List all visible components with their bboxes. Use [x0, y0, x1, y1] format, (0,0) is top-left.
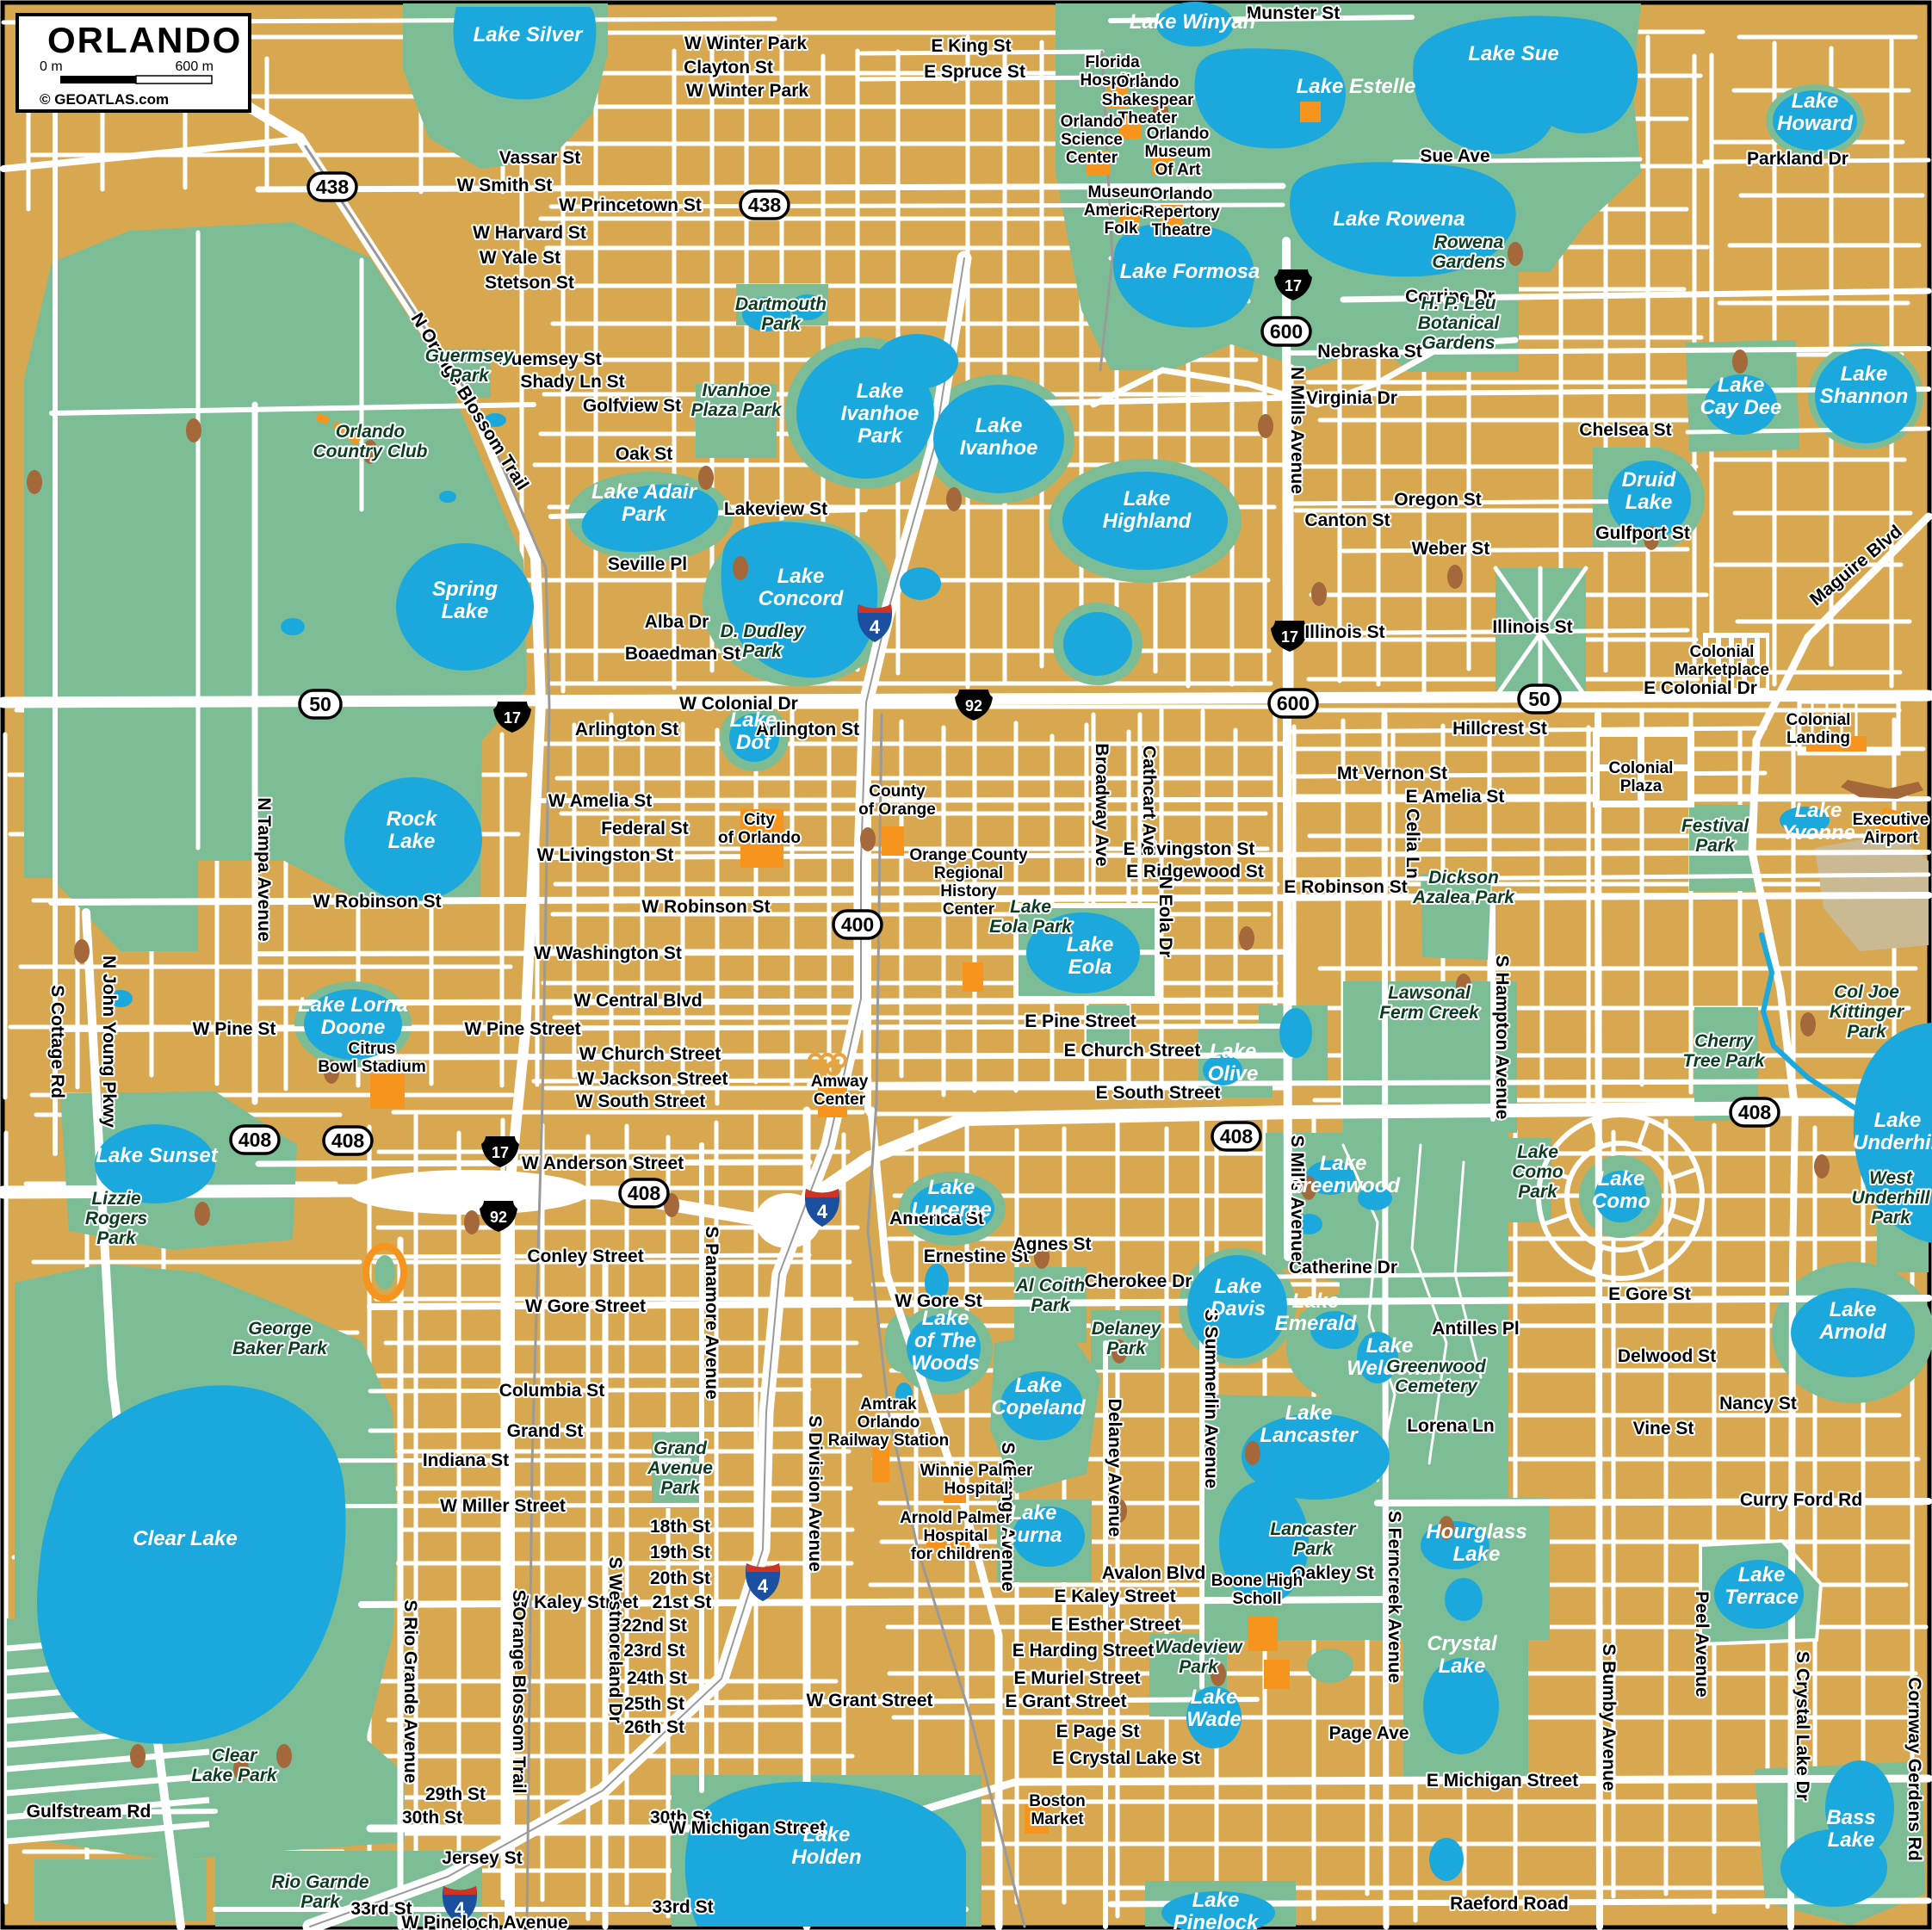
svg-text:Shady Ln St: Shady Ln St: [520, 372, 624, 392]
svg-text:N Mills Avenue: N Mills Avenue: [1287, 367, 1307, 494]
svg-text:E Kaley Street: E Kaley Street: [1054, 1587, 1175, 1606]
svg-text:W Pineloch Avenue: W Pineloch Avenue: [401, 1913, 567, 1930]
svg-text:19th St: 19th St: [650, 1543, 710, 1562]
svg-text:Gulfstream Rd: Gulfstream Rd: [27, 1802, 152, 1822]
svg-text:408: 408: [1738, 1101, 1772, 1123]
svg-text:W South Street: W South Street: [576, 1092, 706, 1111]
svg-text:W Anderson Street: W Anderson Street: [522, 1154, 684, 1173]
svg-text:Lake Estelle: Lake Estelle: [1297, 75, 1416, 98]
svg-text:Cherokee Dr: Cherokee Dr: [1085, 1271, 1192, 1291]
svg-text:Nebraska St: Nebraska St: [1317, 342, 1421, 362]
svg-text:E Ridgewood St: E Ridgewood St: [1126, 862, 1264, 881]
svg-text:E Amelia St: E Amelia St: [1406, 787, 1505, 807]
svg-text:OrlandoScienceCenter: OrlandoScienceCenter: [1061, 113, 1124, 167]
svg-text:BostonMarket: BostonMarket: [1029, 1792, 1085, 1828]
svg-text:LawsonalFerm Creek: LawsonalFerm Creek: [1379, 983, 1480, 1023]
svg-text:S Division Avenue: S Division Avenue: [805, 1415, 825, 1572]
svg-text:50: 50: [309, 693, 331, 715]
svg-text:OrlandoRepertoryTheatre: OrlandoRepertoryTheatre: [1142, 185, 1220, 239]
svg-text:N Eola Dr: N Eola Dr: [1155, 876, 1175, 958]
svg-text:S Ferncreek Avenue: S Ferncreek Avenue: [1384, 1511, 1404, 1683]
svg-text:ColonialLanding: ColonialLanding: [1786, 711, 1851, 747]
svg-text:S Crystal Lake Dr: S Crystal Lake Dr: [1793, 1651, 1812, 1801]
svg-text:W Gore Street: W Gore Street: [525, 1296, 646, 1316]
svg-text:N Tampa Avenue: N Tampa Avenue: [254, 797, 274, 941]
svg-text:408: 408: [238, 1129, 272, 1151]
svg-text:Lakeview St: Lakeview St: [724, 499, 827, 519]
svg-text:Cornway Gerdens Rd: Cornway Gerdens Rd: [1904, 1677, 1924, 1861]
svg-text:S Panamore Avenue: S Panamore Avenue: [702, 1226, 721, 1400]
svg-text:Lake Formosa: Lake Formosa: [1120, 260, 1260, 283]
svg-text:25th St: 25th St: [624, 1694, 684, 1714]
svg-text:Nancy St: Nancy St: [1719, 1394, 1797, 1413]
svg-text:30th St: 30th St: [402, 1808, 462, 1828]
svg-text:E Michigan Street: E Michigan Street: [1427, 1771, 1578, 1791]
svg-text:RockLake: RockLake: [387, 807, 438, 853]
svg-text:E Muriel Street: E Muriel Street: [1013, 1668, 1140, 1688]
svg-text:Columbia St: Columbia St: [499, 1381, 605, 1401]
svg-text:Clear Lake: Clear Lake: [133, 1527, 237, 1550]
svg-text:S Bumby Avenue: S Bumby Avenue: [1599, 1643, 1619, 1791]
svg-text:BassLake: BassLake: [1826, 1806, 1875, 1852]
svg-text:Jersey St: Jersey St: [442, 1848, 522, 1868]
svg-text:Chelsea St: Chelsea St: [1579, 420, 1671, 440]
svg-text:Delaney Avenue: Delaney Avenue: [1105, 1399, 1124, 1537]
svg-text:LakeEola: LakeEola: [1067, 933, 1114, 979]
svg-text:Celia Ln: Celia Ln: [1403, 808, 1422, 879]
svg-text:Federal St: Federal St: [601, 819, 689, 838]
svg-text:438: 438: [316, 176, 350, 198]
svg-text:Lake Winyah: Lake Winyah: [1130, 10, 1256, 34]
svg-text:Vine St: Vine St: [1633, 1419, 1694, 1438]
svg-text:GreenwoodCemetery: GreenwoodCemetery: [1386, 1357, 1487, 1396]
svg-text:LakeDavis: LakeDavis: [1211, 1275, 1266, 1321]
svg-text:33rd St: 33rd St: [652, 1897, 713, 1917]
svg-text:LakeComo: LakeComo: [1592, 1167, 1650, 1213]
svg-text:W Winter Park: W Winter Park: [686, 81, 808, 101]
svg-text:E South Street: E South Street: [1096, 1083, 1221, 1103]
svg-text:408: 408: [628, 1182, 661, 1204]
svg-text:600: 600: [1277, 692, 1310, 714]
svg-text:Peel Avenue: Peel Avenue: [1692, 1591, 1712, 1697]
svg-text:408: 408: [331, 1129, 365, 1152]
svg-text:H. P. LeuBotanicalGardens: H. P. LeuBotanicalGardens: [1418, 294, 1501, 353]
svg-text:LakeComoPark: LakeComoPark: [1512, 1142, 1564, 1202]
svg-text:Stetson St: Stetson St: [485, 273, 574, 293]
svg-text:0 m: 0 m: [40, 59, 63, 74]
svg-text:26th St: 26th St: [624, 1717, 684, 1737]
svg-text:Avalon Blvd: Avalon Blvd: [1102, 1563, 1206, 1583]
svg-text:Oregon St: Oregon St: [1394, 490, 1482, 510]
svg-text:W Central Blvd: W Central Blvd: [573, 991, 702, 1011]
svg-text:W Winter Park: W Winter Park: [684, 34, 807, 53]
svg-text:92: 92: [965, 697, 982, 714]
svg-text:S Orange Blossom Trail: S Orange Blossom Trail: [509, 1590, 529, 1794]
svg-text:Lake Sunset: Lake Sunset: [96, 1144, 218, 1167]
svg-text:E Church Street: E Church Street: [1064, 1041, 1201, 1061]
svg-text:E Grant Street: E Grant Street: [1005, 1692, 1126, 1711]
svg-text:RowenaGardens: RowenaGardens: [1432, 232, 1505, 272]
svg-text:Alba Dr: Alba Dr: [645, 612, 709, 632]
svg-text:E Spruce St: E Spruce St: [924, 62, 1025, 82]
svg-text:E Gore St: E Gore St: [1608, 1284, 1691, 1304]
svg-text:W Amelia St: W Amelia St: [548, 791, 653, 811]
svg-text:DruidLake: DruidLake: [1622, 468, 1677, 514]
svg-text:W Grant Street: W Grant Street: [806, 1691, 932, 1710]
svg-text:4: 4: [817, 1201, 828, 1222]
svg-text:E Crystal Lake St: E Crystal Lake St: [1052, 1748, 1200, 1768]
svg-text:Canton St: Canton St: [1304, 510, 1390, 530]
svg-text:Hillcrest St: Hillcrest St: [1452, 719, 1547, 739]
svg-text:Oak St: Oak St: [616, 444, 673, 464]
svg-text:Page Ave: Page Ave: [1329, 1723, 1409, 1743]
svg-text:Virginia Dr: Virginia Dr: [1306, 388, 1397, 408]
svg-text:S Rio Grande Avenue: S Rio Grande Avenue: [400, 1599, 420, 1783]
svg-text:Antilles Pl: Antilles Pl: [1432, 1319, 1520, 1339]
svg-text:18th St: 18th St: [650, 1517, 710, 1537]
svg-text:Mt Vernon St: Mt Vernon St: [1337, 764, 1447, 783]
svg-text:4: 4: [870, 616, 881, 638]
svg-text:Illinois St: Illinois St: [1304, 622, 1384, 642]
svg-text:Cathcart Ave: Cathcart Ave: [1139, 745, 1159, 856]
svg-text:Delwood St: Delwood St: [1618, 1346, 1716, 1366]
svg-text:Oakley St: Oakley St: [1291, 1563, 1374, 1583]
svg-text:Lake Silver: Lake Silver: [474, 23, 584, 46]
svg-text:Lake Rowena: Lake Rowena: [1333, 207, 1464, 231]
svg-text:Weber St: Weber St: [1412, 539, 1490, 559]
svg-text:408: 408: [1220, 1125, 1254, 1147]
svg-text:Vassar St: Vassar St: [499, 148, 581, 168]
svg-text:W Pine Street: W Pine Street: [464, 1019, 580, 1039]
svg-text:AmwayCenter: AmwayCenter: [811, 1073, 869, 1109]
svg-text:Lorena Ln: Lorena Ln: [1407, 1416, 1495, 1436]
svg-text:S Cottage Rd: S Cottage Rd: [47, 985, 67, 1098]
svg-text:E Robinson St: E Robinson St: [1284, 877, 1408, 897]
svg-text:N John Young Pkwy: N John Young Pkwy: [99, 956, 119, 1128]
svg-text:E Esther Street: E Esther Street: [1051, 1615, 1181, 1635]
svg-text:S Summerlin Avenue: S Summerlin Avenue: [1201, 1309, 1221, 1489]
svg-text:438: 438: [748, 194, 782, 216]
svg-text:ORLANDO: ORLANDO: [47, 20, 242, 60]
svg-text:LakeDot: LakeDot: [730, 708, 777, 754]
svg-text:92: 92: [490, 1209, 507, 1226]
svg-text:IvanhoePlaza Park: IvanhoePlaza Park: [690, 380, 782, 420]
svg-text:S Hampton Avenue: S Hampton Avenue: [1492, 956, 1512, 1120]
svg-text:W Yale St: W Yale St: [480, 248, 560, 268]
svg-text:LakeWade: LakeWade: [1186, 1686, 1242, 1731]
svg-text:W Miller Street: W Miller Street: [440, 1496, 566, 1516]
svg-text:ExecutiveAirport: ExecutiveAirport: [1853, 811, 1929, 847]
svg-text:17: 17: [504, 709, 521, 727]
svg-text:Seville Pl: Seville Pl: [608, 554, 687, 574]
svg-text:600: 600: [1270, 320, 1303, 343]
svg-text:W Church Street: W Church Street: [579, 1044, 721, 1064]
svg-text:W Washington St: W Washington St: [534, 943, 682, 963]
svg-text:22nd St: 22nd St: [622, 1616, 687, 1636]
svg-text:Countyof Orange: Countyof Orange: [858, 783, 936, 819]
svg-text:W Jackson Street: W Jackson Street: [577, 1069, 728, 1089]
svg-text:E Page St: E Page St: [1056, 1722, 1140, 1741]
svg-text:W Livingston St: W Livingston St: [537, 845, 674, 865]
svg-text:W Robinson St: W Robinson St: [641, 897, 770, 917]
svg-text:E Harding Street: E Harding Street: [1012, 1641, 1155, 1661]
svg-text:23rd St: 23rd St: [623, 1641, 684, 1661]
svg-text:Munster St: Munster St: [1247, 3, 1341, 23]
svg-text:17: 17: [492, 1144, 509, 1161]
svg-text:Illinois St: Illinois St: [1492, 617, 1572, 637]
svg-text:600 m: 600 m: [176, 59, 214, 74]
svg-text:W Princetown St: W Princetown St: [559, 195, 702, 215]
svg-text:Lake Sue: Lake Sue: [1468, 42, 1558, 65]
svg-text:Sue Ave: Sue Ave: [1420, 146, 1489, 166]
svg-text:50: 50: [1528, 688, 1551, 710]
svg-text:SpringLake: SpringLake: [432, 578, 498, 623]
svg-text:20th St: 20th St: [650, 1568, 710, 1588]
svg-text:Curry Ford Rd: Curry Ford Rd: [1740, 1490, 1862, 1510]
svg-text:Raeford Road: Raeford Road: [1450, 1894, 1569, 1914]
svg-text:W Smith St: W Smith St: [457, 176, 553, 195]
svg-text:E Colonial Dr: E Colonial Dr: [1644, 678, 1757, 698]
svg-text:Parkland Dr: Parkland Dr: [1747, 149, 1848, 169]
svg-text:W Robinson St: W Robinson St: [313, 892, 441, 912]
svg-text:Conley Street: Conley Street: [527, 1246, 643, 1266]
svg-text:4: 4: [758, 1575, 769, 1597]
svg-text:LakeOlive: LakeOlive: [1208, 1040, 1259, 1086]
svg-text:S Westmoreland Dr: S Westmoreland Dr: [605, 1556, 625, 1723]
svg-text:Clayton St: Clayton St: [684, 58, 773, 77]
svg-text:29th St: 29th St: [425, 1785, 486, 1804]
svg-text:W Harvard St: W Harvard St: [473, 223, 586, 243]
svg-text:Broadway Ave: Broadway Ave: [1092, 743, 1112, 866]
svg-text:21st St: 21st St: [653, 1593, 712, 1612]
svg-text:Arlington St: Arlington St: [575, 720, 678, 739]
svg-text:Grand St: Grand St: [507, 1421, 584, 1441]
svg-text:Indiana St: Indiana St: [423, 1451, 509, 1470]
svg-text:24th St: 24th St: [627, 1668, 687, 1688]
svg-text:S Mills Avenue: S Mills Avenue: [1287, 1135, 1307, 1262]
svg-text:400: 400: [841, 913, 874, 936]
svg-text:E Pine Street: E Pine Street: [1025, 1011, 1136, 1031]
svg-text:Boaedman St: Boaedman St: [625, 644, 740, 664]
svg-text:W Pine St: W Pine St: [193, 1019, 276, 1039]
svg-text:© GEOATLAS.com: © GEOATLAS.com: [40, 91, 169, 108]
svg-text:Golfview St: Golfview St: [583, 396, 681, 416]
svg-text:17: 17: [1281, 628, 1298, 646]
svg-text:E King St: E King St: [931, 36, 1011, 56]
svg-text:LakeLurna: LakeLurna: [1005, 1501, 1062, 1547]
svg-text:Gulfport St: Gulfport St: [1595, 523, 1690, 543]
svg-text:17: 17: [1285, 277, 1302, 294]
svg-text:Agnes St: Agnes St: [1012, 1234, 1091, 1254]
